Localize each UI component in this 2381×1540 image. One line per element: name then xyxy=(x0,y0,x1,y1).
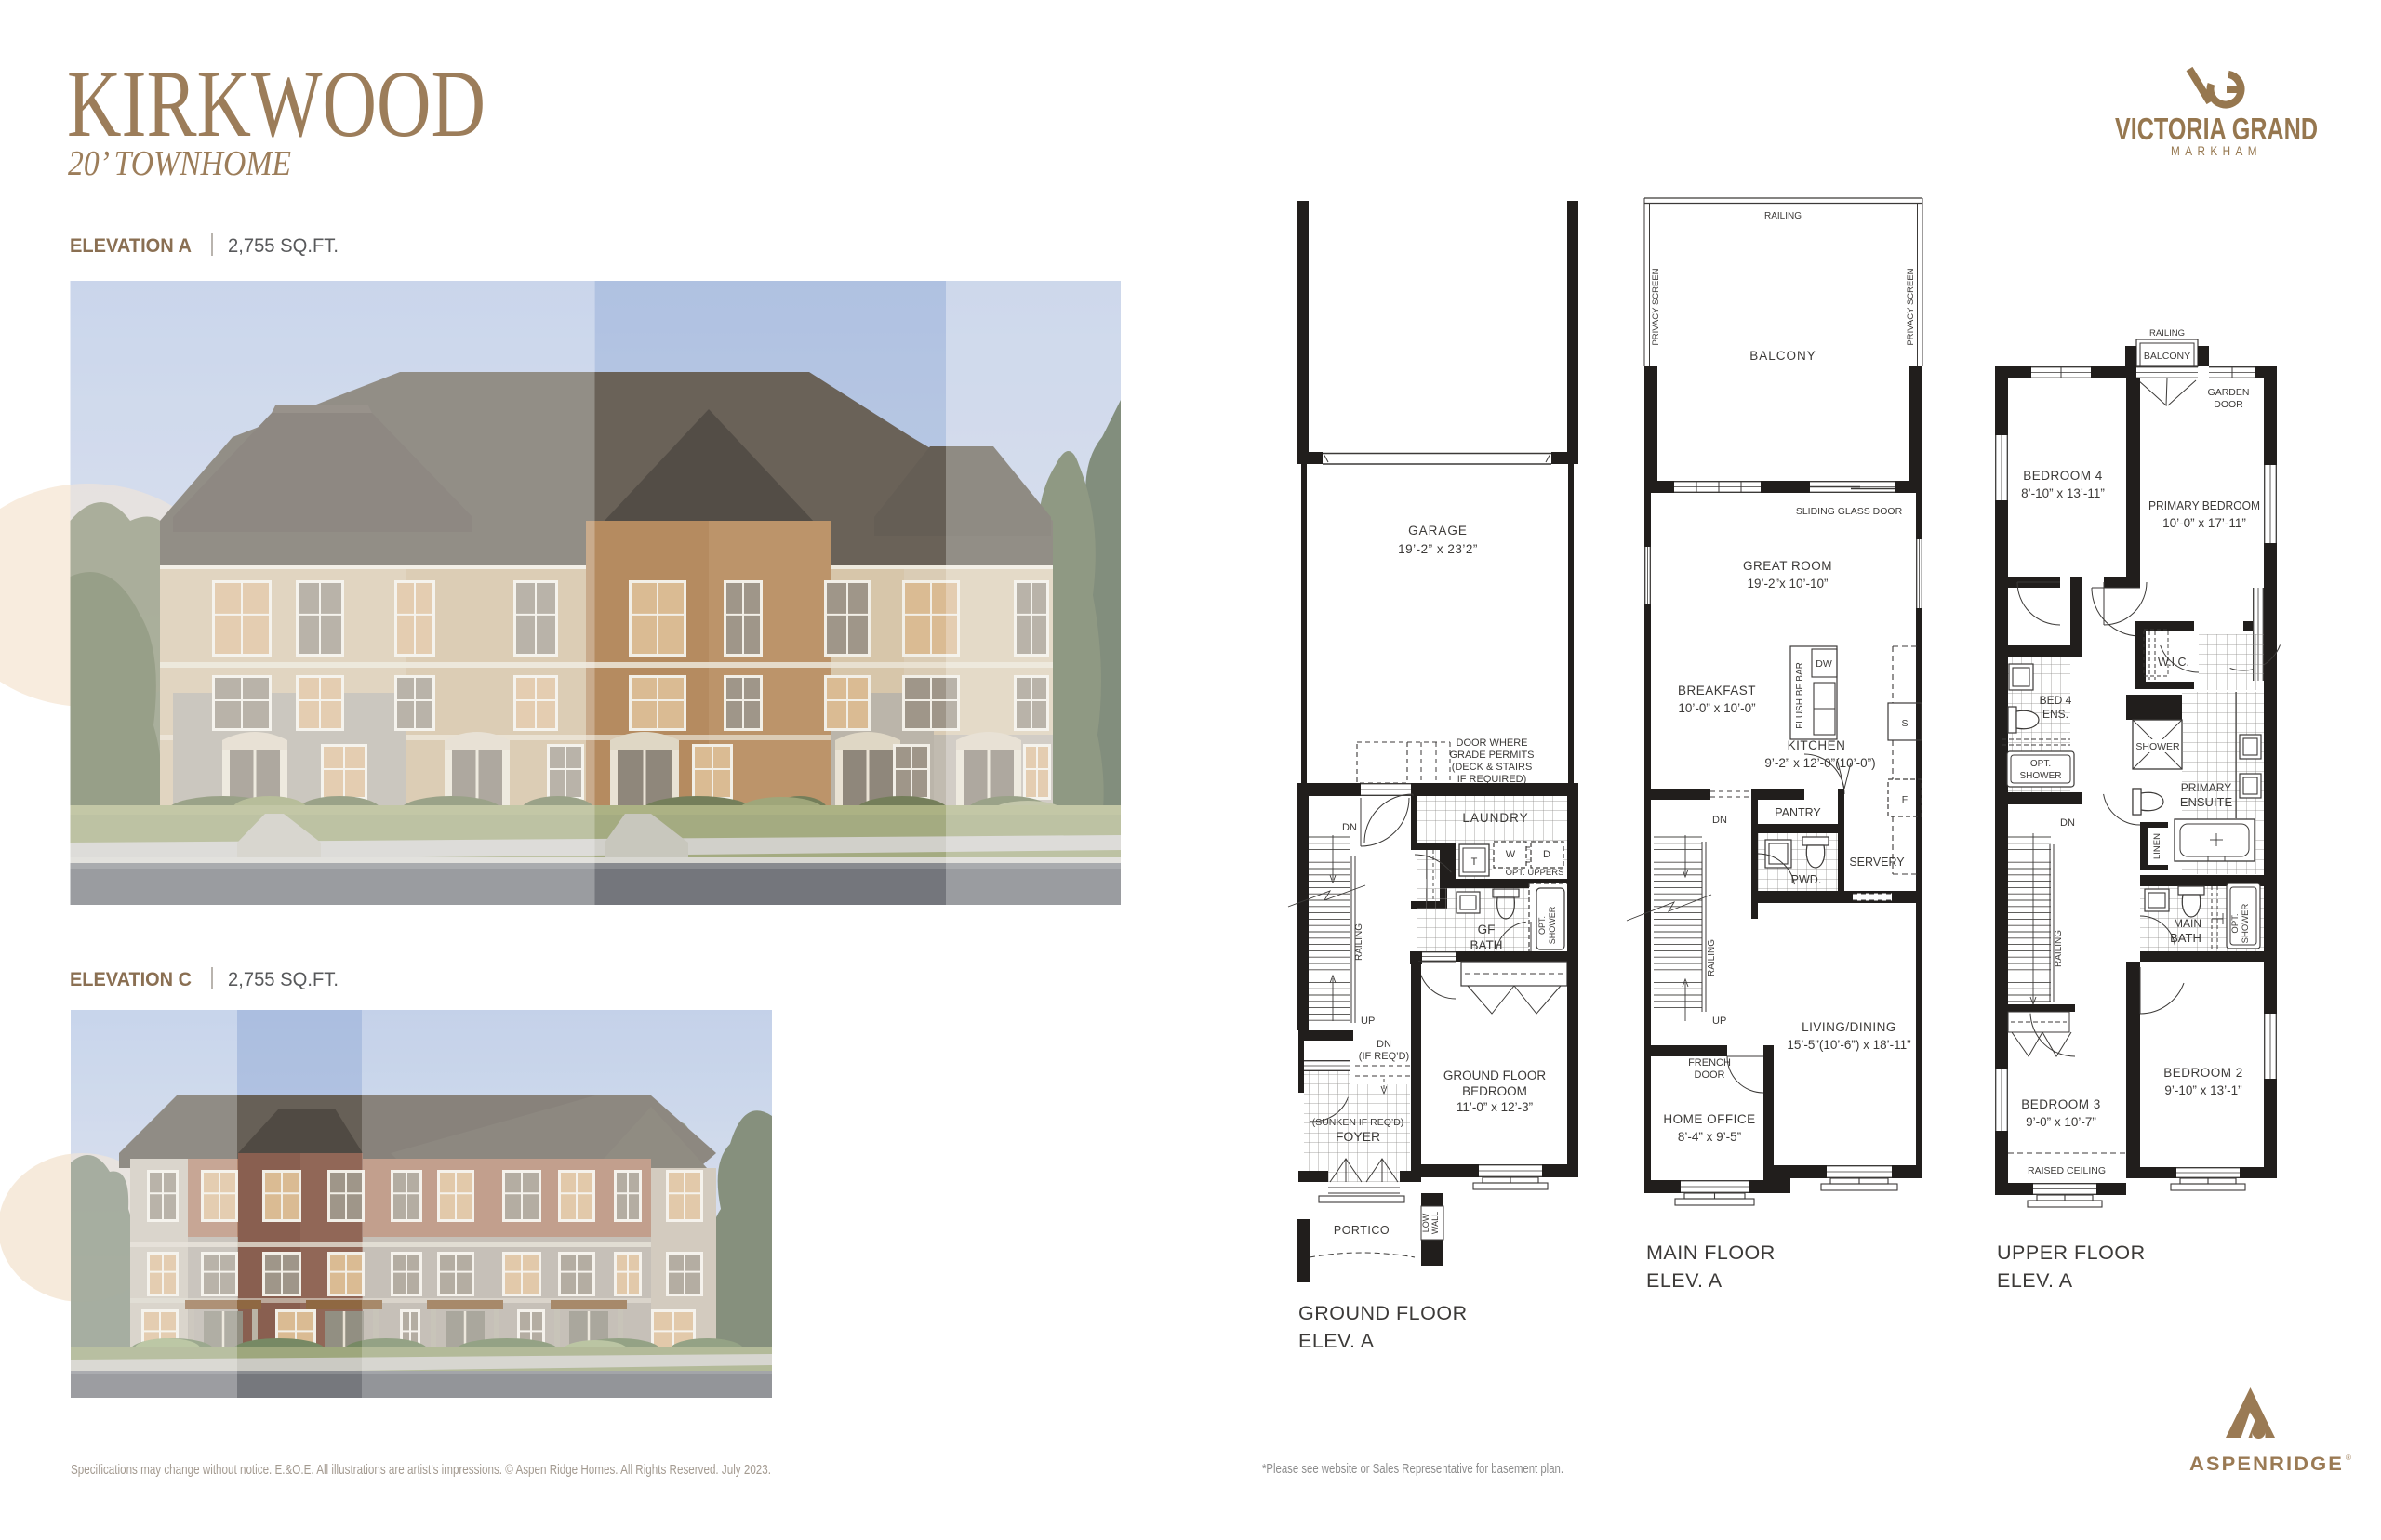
svg-text:PWD.: PWD. xyxy=(1791,873,1822,886)
svg-text:BEDROOM 2: BEDROOM 2 xyxy=(2163,1066,2243,1080)
svg-text:VICTORIA GRAND: VICTORIA GRAND xyxy=(2115,112,2318,146)
svg-text:SERVERY: SERVERY xyxy=(1849,856,1905,869)
svg-text:DOOR: DOOR xyxy=(1695,1069,1725,1081)
svg-text:(DECK & STAIRS: (DECK & STAIRS xyxy=(1452,762,1533,773)
svg-text:2,755 SQ.FT.: 2,755 SQ.FT. xyxy=(228,969,339,990)
svg-text:ELEV. A: ELEV. A xyxy=(1997,1269,2073,1292)
svg-text:HOME OFFICE: HOME OFFICE xyxy=(1663,1112,1755,1126)
svg-text:GARDEN: GARDEN xyxy=(2208,387,2250,398)
svg-text:2,755 SQ.FT.: 2,755 SQ.FT. xyxy=(228,235,339,257)
svg-text:LIVING/DINING: LIVING/DINING xyxy=(1802,1020,1896,1034)
svg-text:15’-5”(10’-6”) x 18’-11”: 15’-5”(10’-6”) x 18’-11” xyxy=(1787,1038,1910,1052)
svg-text:8’-4” x 9’-5”: 8’-4” x 9’-5” xyxy=(1678,1130,1741,1144)
svg-text:BALCONY: BALCONY xyxy=(1749,349,1816,363)
svg-text:Specifications may change with: Specifications may change without notice… xyxy=(71,1462,771,1478)
svg-text:KIRKWOOD: KIRKWOOD xyxy=(67,51,486,157)
svg-text:SHOWER: SHOWER xyxy=(2135,741,2180,752)
svg-text:DN: DN xyxy=(2060,817,2075,829)
svg-text:BEDROOM 3: BEDROOM 3 xyxy=(2021,1097,2101,1111)
svg-text:9’-0” x 10’-7”: 9’-0” x 10’-7” xyxy=(2026,1115,2096,1129)
svg-text:RAILING: RAILING xyxy=(1707,939,1717,976)
svg-text:S: S xyxy=(1901,718,1908,729)
svg-text:ELEV. A: ELEV. A xyxy=(1646,1269,1723,1292)
svg-text:UP: UP xyxy=(1712,1016,1726,1027)
svg-text:SHOWER: SHOWER xyxy=(2241,903,2251,943)
svg-text:RAILING: RAILING xyxy=(1764,211,1802,221)
svg-text:9’-10” x 13’-1”: 9’-10” x 13’-1” xyxy=(2164,1083,2241,1097)
svg-text:ELEVATION C: ELEVATION C xyxy=(70,969,192,990)
svg-text:*Please see website or Sales R: *Please see website or Sales Representat… xyxy=(1262,1461,1563,1477)
svg-text:T: T xyxy=(1471,856,1478,868)
svg-text:UP: UP xyxy=(1361,1016,1375,1027)
svg-text:RAILING: RAILING xyxy=(2149,328,2185,339)
svg-text:LAUNDRY: LAUNDRY xyxy=(1462,811,1528,825)
svg-text:®: ® xyxy=(2346,1454,2351,1462)
svg-text:9’-2” x 12’-0”(10’-0”): 9’-2” x 12’-0”(10’-0”) xyxy=(1764,756,1875,770)
svg-text:OPT.: OPT. xyxy=(2230,913,2241,933)
svg-text:SLIDING GLASS DOOR: SLIDING GLASS DOOR xyxy=(1796,506,1903,517)
svg-text:DN: DN xyxy=(1342,822,1357,833)
svg-text:BEDROOM: BEDROOM xyxy=(1462,1084,1527,1098)
svg-text:UPPER FLOOR: UPPER FLOOR xyxy=(1997,1241,2146,1264)
svg-text:(SUNKEN IF REQ’D): (SUNKEN IF REQ’D) xyxy=(1312,1117,1404,1128)
svg-text:DOOR: DOOR xyxy=(2214,399,2243,410)
svg-text:OPT.: OPT. xyxy=(1537,916,1547,935)
svg-text:19’-2”x 10’-10”: 19’-2”x 10’-10” xyxy=(1747,577,1828,591)
svg-text:PANTRY: PANTRY xyxy=(1775,806,1821,819)
svg-text:GF: GF xyxy=(1478,923,1496,936)
svg-text:PRIVACY SCREEN: PRIVACY SCREEN xyxy=(1651,268,1661,345)
svg-text:GREAT ROOM: GREAT ROOM xyxy=(1743,559,1832,573)
svg-text:W: W xyxy=(1506,849,1516,860)
svg-text:ELEV. A: ELEV. A xyxy=(1298,1330,1375,1352)
svg-text:ELEVATION A: ELEVATION A xyxy=(70,235,192,257)
svg-text:(IF REQ’D): (IF REQ’D) xyxy=(1359,1051,1409,1062)
svg-text:MAIN FLOOR: MAIN FLOOR xyxy=(1646,1241,1776,1264)
svg-text:GRADE PERMITS: GRADE PERMITS xyxy=(1449,750,1534,761)
svg-text:20’ TOWNHOME: 20’ TOWNHOME xyxy=(68,144,291,183)
svg-text:PRIMARY BEDROOM: PRIMARY BEDROOM xyxy=(2148,498,2260,512)
svg-text:ASPENRIDGE: ASPENRIDGE xyxy=(2189,1454,2344,1475)
svg-text:ENS.: ENS. xyxy=(2042,708,2068,721)
svg-text:WALL: WALL xyxy=(1430,1212,1440,1234)
svg-text:LINEN: LINEN xyxy=(2152,833,2162,859)
svg-text:SHOWER: SHOWER xyxy=(1548,906,1557,944)
svg-text:FLUSH BF BAR: FLUSH BF BAR xyxy=(1795,662,1805,729)
svg-text:SHOWER: SHOWER xyxy=(2020,771,2062,781)
svg-text:RAILING: RAILING xyxy=(1354,923,1364,961)
svg-text:DW: DW xyxy=(1816,658,1832,670)
svg-text:GARAGE: GARAGE xyxy=(1408,524,1468,538)
svg-text:10’-0” x 10’-0”: 10’-0” x 10’-0” xyxy=(1678,701,1755,715)
svg-text:RAISED CEILING: RAISED CEILING xyxy=(2028,1165,2106,1176)
svg-text:BEDROOM 4: BEDROOM 4 xyxy=(2023,469,2103,483)
svg-text:DOOR WHERE: DOOR WHERE xyxy=(1457,737,1528,749)
svg-text:GROUND FLOOR: GROUND FLOOR xyxy=(1298,1302,1468,1324)
svg-text:19’-2” x 23’2”: 19’-2” x 23’2” xyxy=(1398,542,1478,556)
svg-text:11’-0” x 12’-3”: 11’-0” x 12’-3” xyxy=(1457,1100,1533,1114)
svg-text:RAILING: RAILING xyxy=(2054,930,2064,967)
svg-text:PRIVACY SCREEN: PRIVACY SCREEN xyxy=(1906,268,1916,345)
svg-text:GROUND FLOOR: GROUND FLOOR xyxy=(1443,1069,1547,1082)
svg-text:KITCHEN: KITCHEN xyxy=(1788,738,1846,752)
svg-text:OPT.: OPT. xyxy=(2030,759,2051,769)
svg-text:FOYER: FOYER xyxy=(1336,1129,1380,1144)
svg-text:OPT. UPPERS: OPT. UPPERS xyxy=(1506,868,1564,878)
svg-text:FRENCH: FRENCH xyxy=(1688,1057,1731,1069)
svg-text:ENSUITE: ENSUITE xyxy=(2180,795,2233,809)
svg-text:PORTICO: PORTICO xyxy=(1334,1224,1390,1237)
svg-text:W.I.C.: W.I.C. xyxy=(2158,656,2189,669)
svg-text:10’-0” x 17’-11”: 10’-0” x 17’-11” xyxy=(2162,516,2246,530)
svg-text:MAIN: MAIN xyxy=(2174,917,2201,930)
svg-text:BALCONY: BALCONY xyxy=(2144,351,2190,362)
svg-text:8’-10” x 13’-11”: 8’-10” x 13’-11” xyxy=(2021,486,2105,500)
svg-text:MARKHAM: MARKHAM xyxy=(2171,143,2262,158)
svg-text:BED 4: BED 4 xyxy=(2040,694,2072,707)
svg-text:BREAKFAST: BREAKFAST xyxy=(1678,684,1756,697)
svg-text:DN: DN xyxy=(1712,815,1727,826)
svg-text:LOW: LOW xyxy=(1421,1213,1430,1232)
svg-text:D: D xyxy=(1543,849,1550,860)
svg-text:PRIMARY: PRIMARY xyxy=(2181,781,2231,794)
svg-text:F: F xyxy=(1902,794,1908,805)
svg-text:DN: DN xyxy=(1377,1039,1391,1050)
